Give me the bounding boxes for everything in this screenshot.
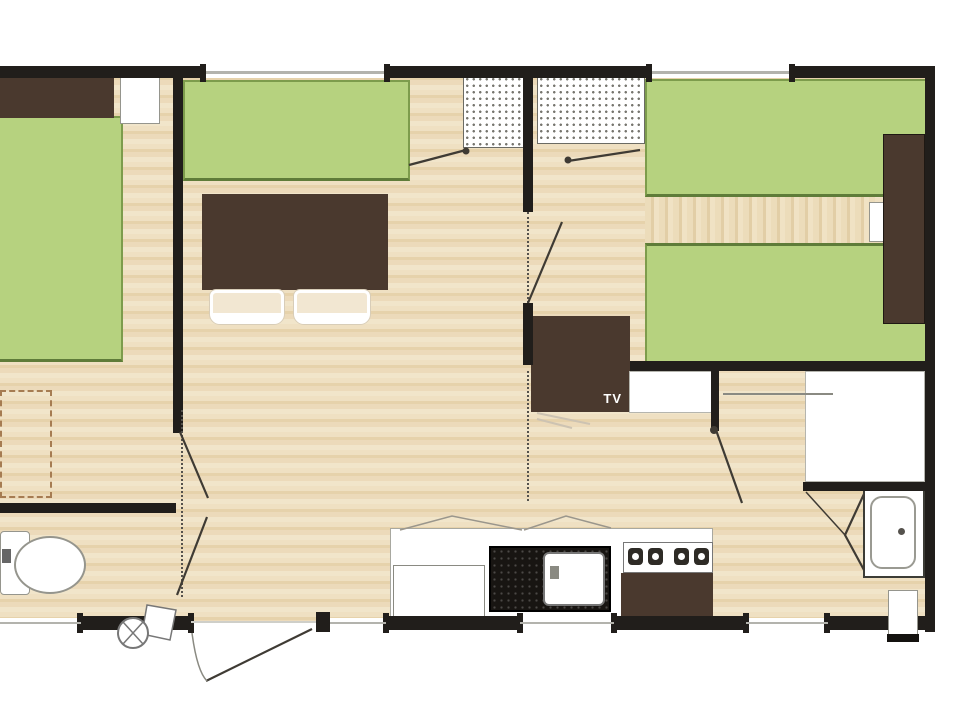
counter-edge-line <box>400 516 522 530</box>
door-leaf-bathroom <box>716 430 742 503</box>
counter-edge-line <box>524 516 611 530</box>
door-hinge-dot <box>463 148 470 155</box>
entrance-door-arc <box>192 633 207 681</box>
floorplan-canvas: TV <box>0 0 960 720</box>
door-leaf-wardrobe-left <box>409 150 466 165</box>
entry-step <box>888 590 918 636</box>
shower-door-line <box>806 492 845 535</box>
entry-step-edge <box>887 634 919 642</box>
linework-overlay <box>0 0 960 720</box>
door-hinge-dot <box>710 426 718 434</box>
door-leaf-bedroom-right <box>528 222 562 303</box>
door-leaf-wardrobe-right <box>568 150 640 161</box>
door-hinge-dot <box>565 157 572 164</box>
door-leaf-wc <box>177 517 207 595</box>
door-leaf-bedroom-left <box>180 432 208 498</box>
cabinet-shadow-line <box>537 413 590 428</box>
shower-bifold-door <box>845 494 864 570</box>
door-leaf-entrance <box>206 629 312 681</box>
